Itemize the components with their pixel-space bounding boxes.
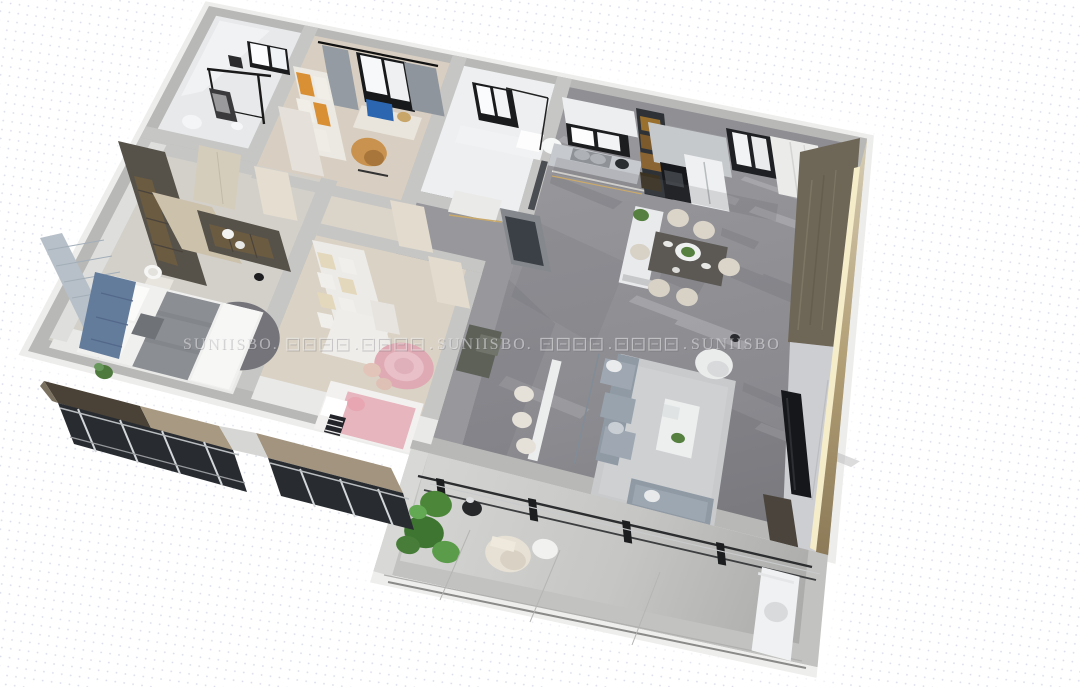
svg-text:.: . xyxy=(608,336,614,353)
svg-text:.: . xyxy=(429,336,435,353)
svg-text:SUNIISBO.: SUNIISBO. xyxy=(183,336,279,353)
svg-text:.: . xyxy=(683,336,689,353)
svg-text:SUNIISBO: SUNIISBO xyxy=(691,336,781,353)
svg-text:SUNIISBO.: SUNIISBO. xyxy=(437,336,533,353)
svg-text:.: . xyxy=(354,336,360,353)
